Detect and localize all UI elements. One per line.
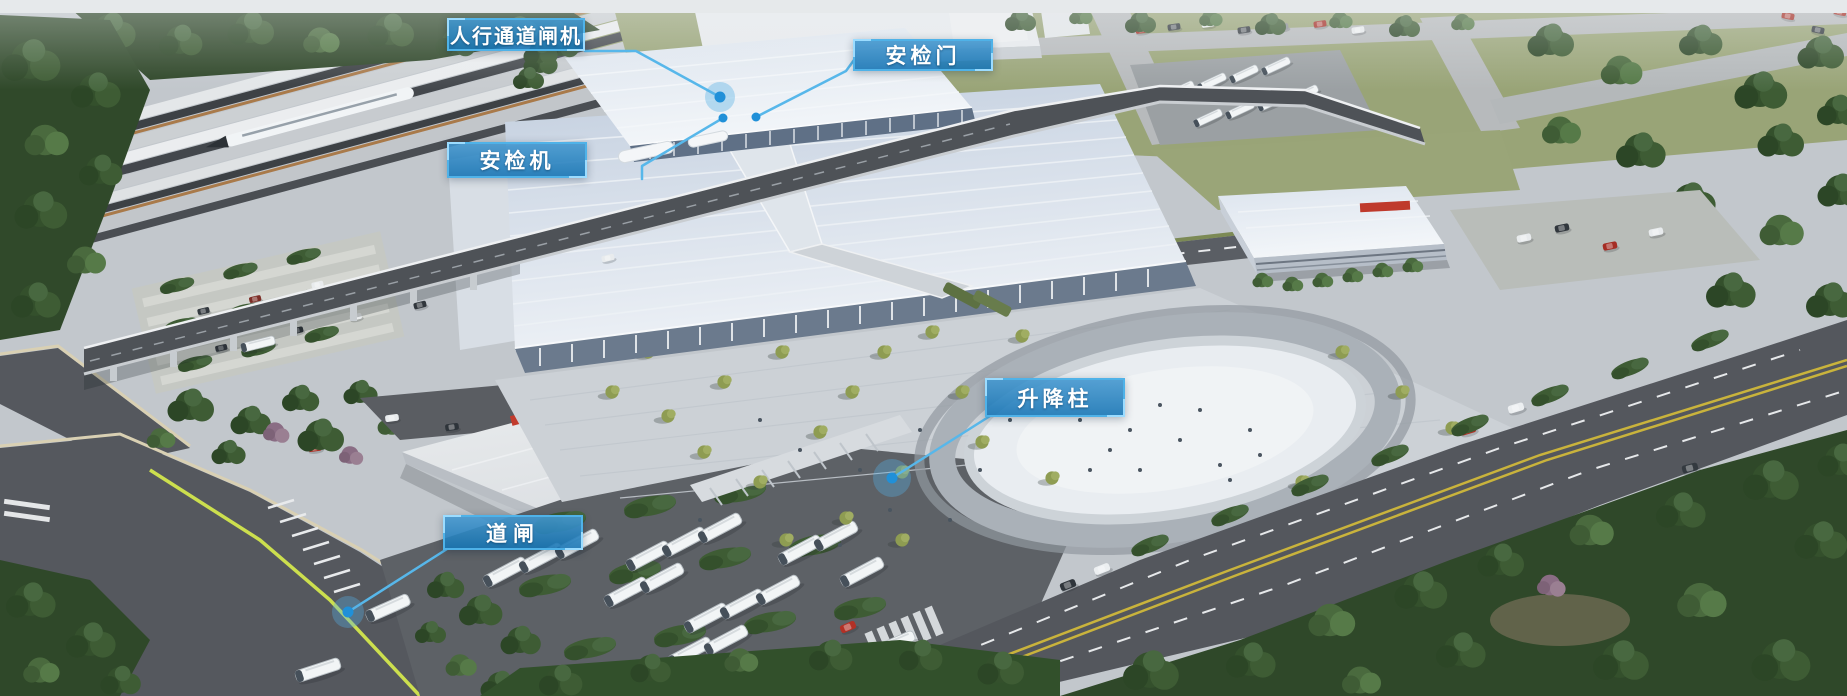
callout-label: 安检机 bbox=[480, 145, 555, 175]
callout-lift-bollard: 升降柱 bbox=[985, 378, 1125, 417]
callout-label: 升降柱 bbox=[1018, 383, 1093, 413]
aerial-render bbox=[0, 0, 1847, 696]
callout-security-scanner: 安检机 bbox=[447, 142, 587, 178]
sky-strip bbox=[0, 0, 1847, 13]
callout-pedestrian-channel-gate: 人行通道闸机 bbox=[447, 18, 585, 51]
aerial-station-banner: 人行通道闸机 安检门 安检机 升降柱 道闸 bbox=[0, 0, 1847, 696]
callout-label: 道闸 bbox=[486, 518, 540, 548]
callout-security-door: 安检门 bbox=[853, 39, 993, 71]
callout-label: 人行通道闸机 bbox=[450, 20, 582, 49]
callout-barrier-gate: 道闸 bbox=[443, 515, 583, 550]
callout-label: 安检门 bbox=[886, 40, 961, 70]
